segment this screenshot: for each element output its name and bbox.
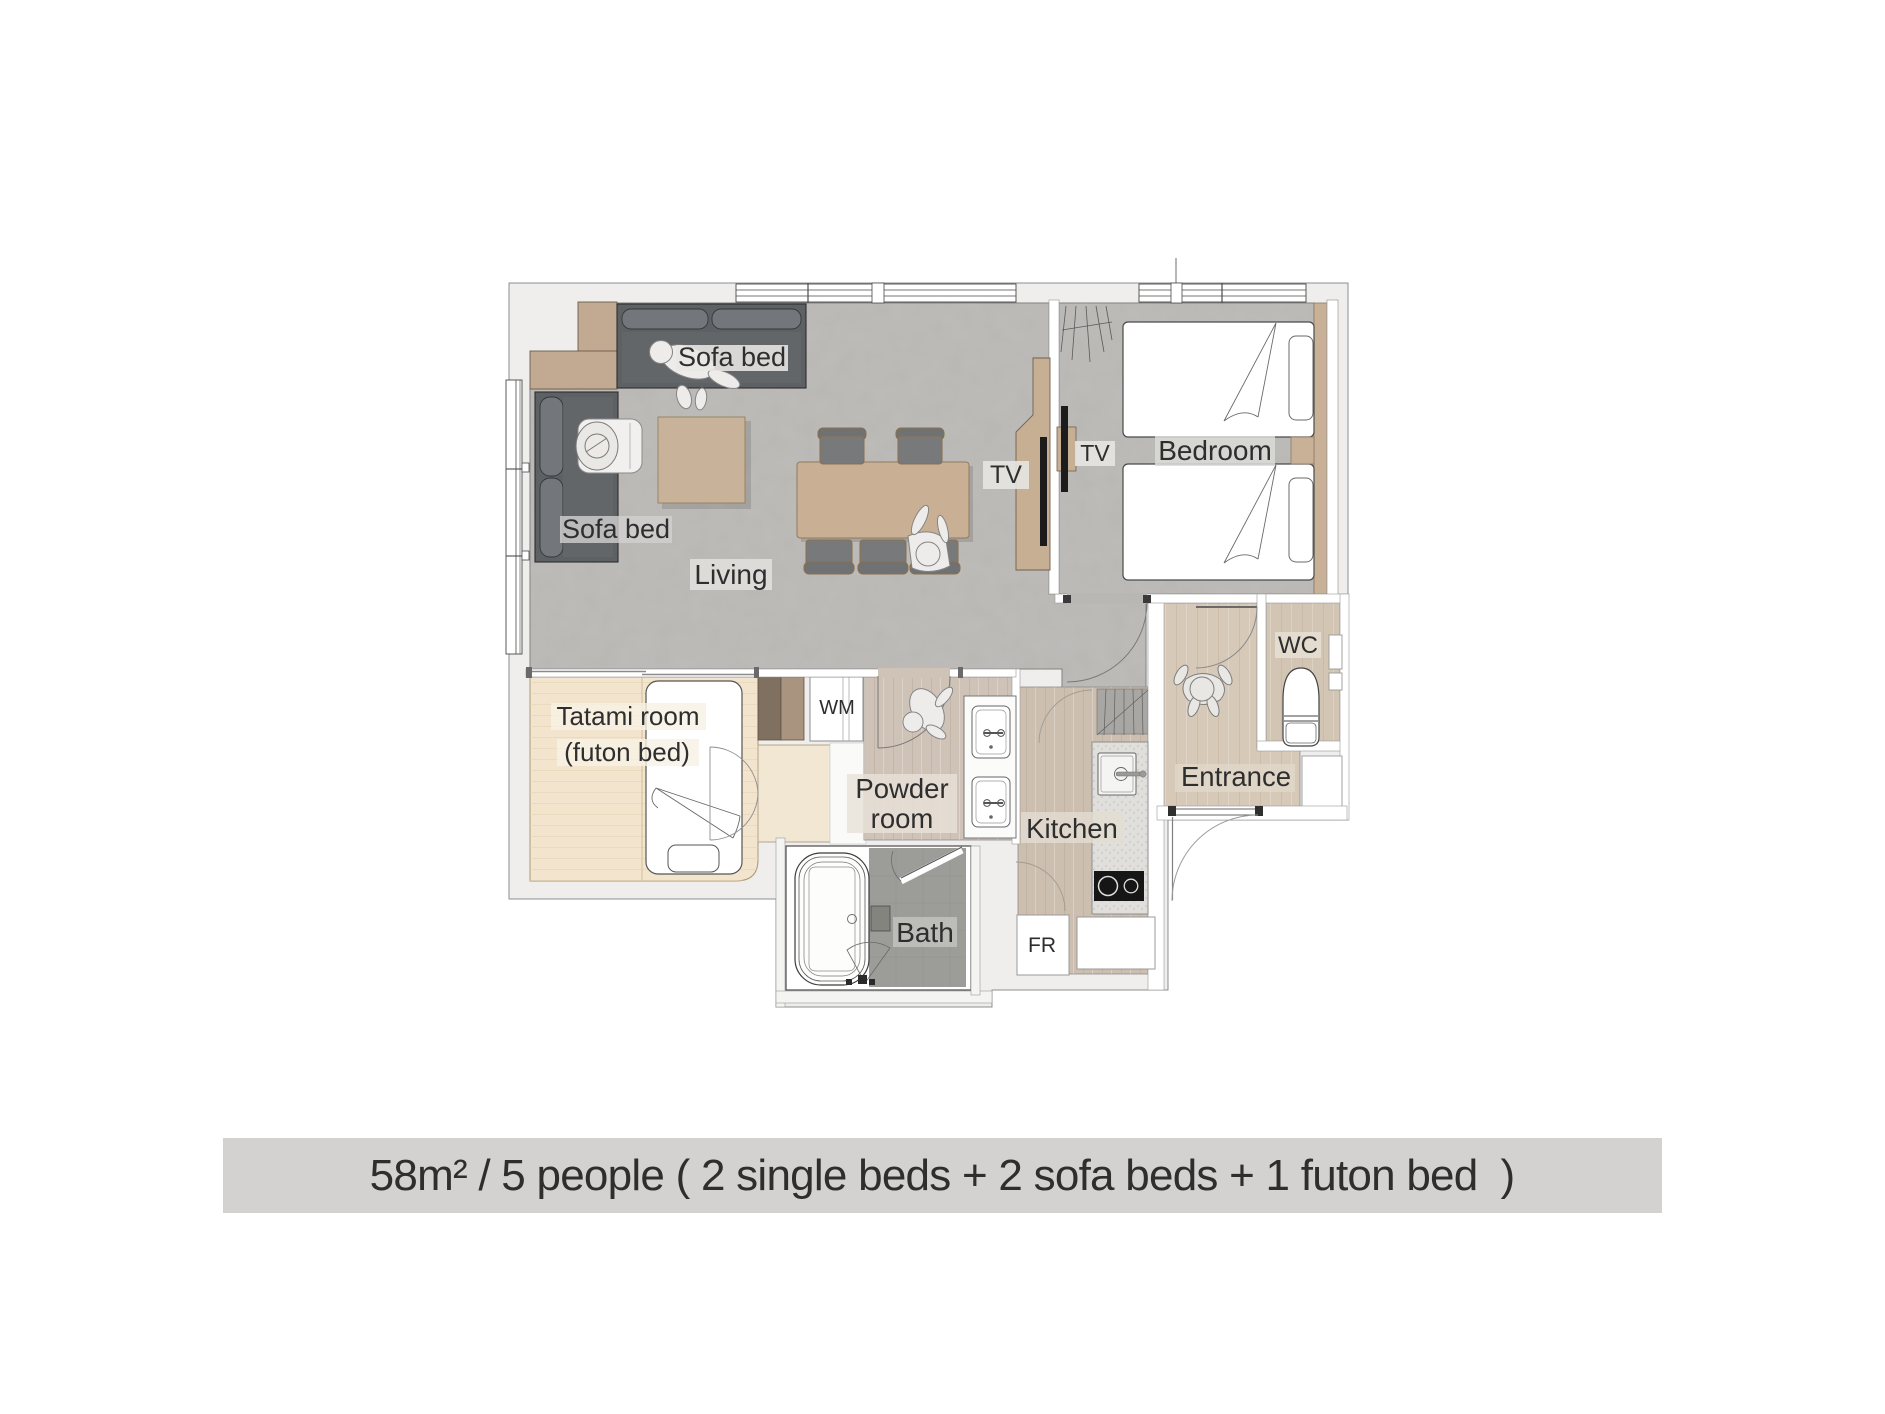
- svg-text:WM: WM: [819, 697, 855, 719]
- svg-text:Tatami room: Tatami room: [556, 701, 699, 731]
- svg-text:Bath: Bath: [896, 917, 954, 948]
- svg-text:Sofa bed: Sofa bed: [562, 514, 670, 544]
- svg-text:TV: TV: [990, 461, 1022, 489]
- svg-text:Living: Living: [694, 559, 767, 590]
- svg-text:Bedroom: Bedroom: [1158, 435, 1272, 466]
- svg-text:TV: TV: [1080, 440, 1110, 466]
- svg-text:Kitchen: Kitchen: [1026, 813, 1118, 844]
- svg-text:(futon bed): (futon bed): [564, 737, 690, 767]
- svg-text:58m² / 5 people ( 2 single bed: 58m² / 5 people ( 2 single beds + 2 sofa…: [370, 1151, 1515, 1200]
- svg-text:FR: FR: [1028, 934, 1056, 957]
- svg-text:Sofa bed: Sofa bed: [678, 342, 786, 372]
- svg-text:Entrance: Entrance: [1181, 761, 1291, 792]
- svg-text:room: room: [871, 803, 934, 834]
- svg-text:Powder: Powder: [855, 773, 948, 804]
- svg-text:WC: WC: [1278, 632, 1318, 659]
